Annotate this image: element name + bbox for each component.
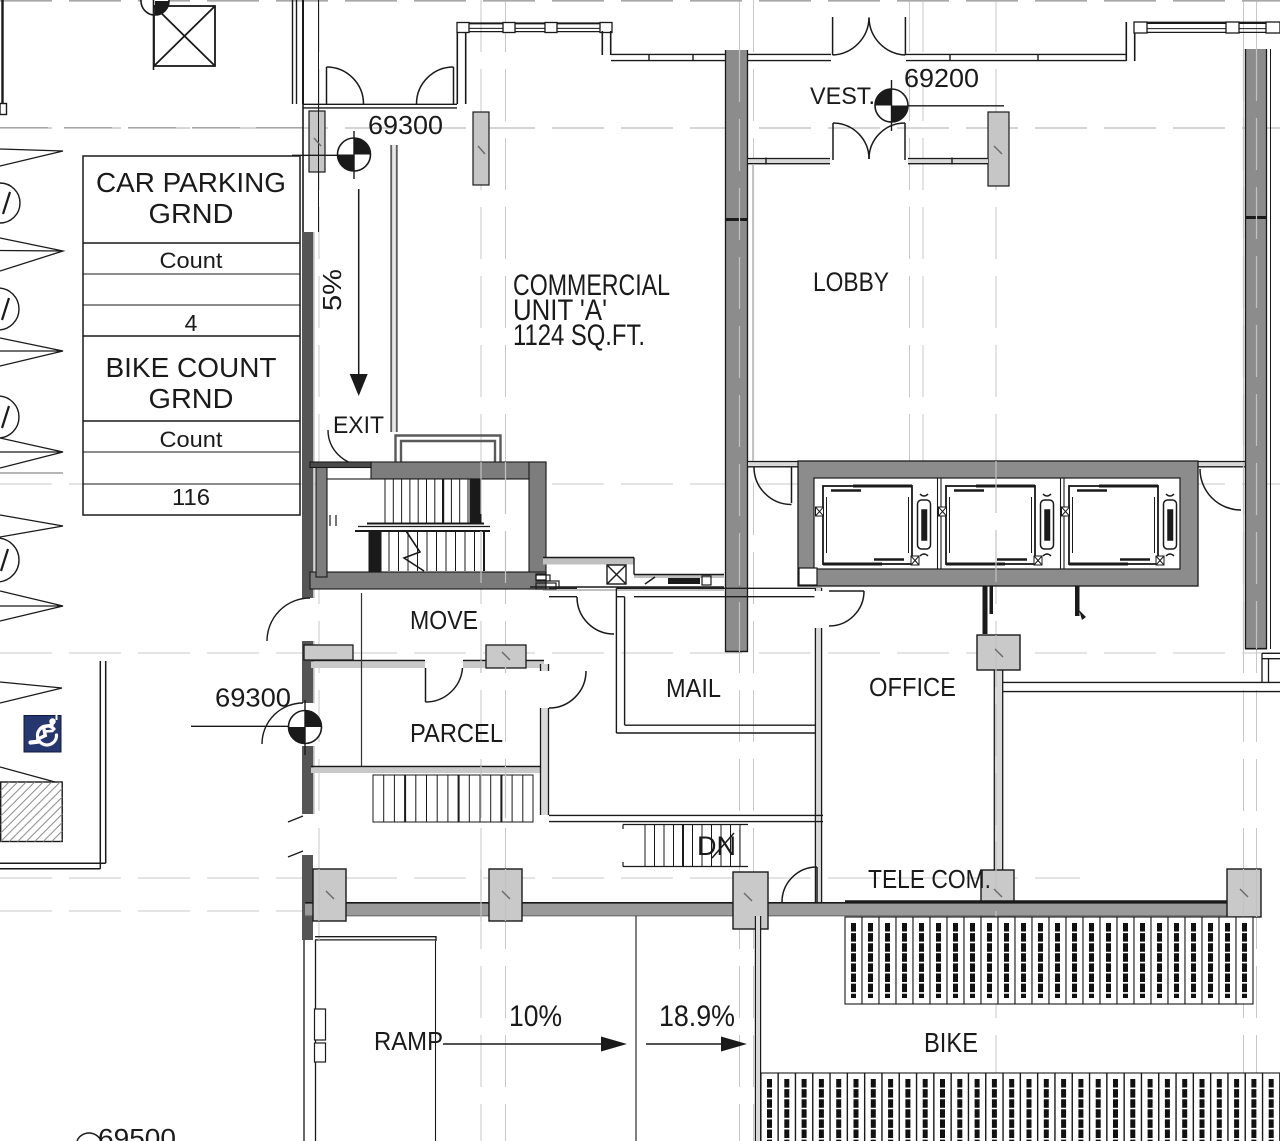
svg-text:RAMP: RAMP [374, 1026, 443, 1056]
svg-text:MOVE: MOVE [410, 605, 478, 635]
svg-text:1124 SQ.FT.: 1124 SQ.FT. [513, 319, 645, 352]
svg-text:OFFICE: OFFICE [869, 672, 956, 702]
svg-text:Count: Count [160, 427, 223, 452]
svg-text:PARCEL: PARCEL [410, 718, 503, 748]
svg-text:69300: 69300 [368, 110, 443, 140]
svg-text:69500: 69500 [98, 1123, 176, 1141]
svg-text:CAR PARKING: CAR PARKING [96, 167, 286, 198]
svg-text:Count: Count [160, 248, 223, 273]
svg-text:69300: 69300 [215, 683, 291, 713]
svg-text:LOBBY: LOBBY [813, 267, 889, 297]
svg-text:4: 4 [185, 310, 198, 336]
svg-text:GRND: GRND [149, 383, 234, 414]
svg-text:MAIL: MAIL [666, 673, 721, 703]
svg-text:GRND: GRND [149, 198, 234, 229]
svg-text:TELE COM.: TELE COM. [868, 864, 991, 894]
svg-text:5%: 5% [317, 269, 347, 311]
svg-text:VEST.: VEST. [810, 83, 875, 110]
svg-text:EXIT: EXIT [333, 412, 384, 439]
svg-text:BIKE COUNT: BIKE COUNT [106, 352, 277, 383]
svg-text:69200: 69200 [904, 63, 979, 93]
svg-text:116: 116 [172, 484, 210, 510]
svg-text:DN: DN [697, 831, 736, 861]
svg-text:BIKE: BIKE [924, 1027, 978, 1058]
svg-text:18.9%: 18.9% [659, 1000, 735, 1033]
svg-text:10%: 10% [509, 1000, 562, 1033]
